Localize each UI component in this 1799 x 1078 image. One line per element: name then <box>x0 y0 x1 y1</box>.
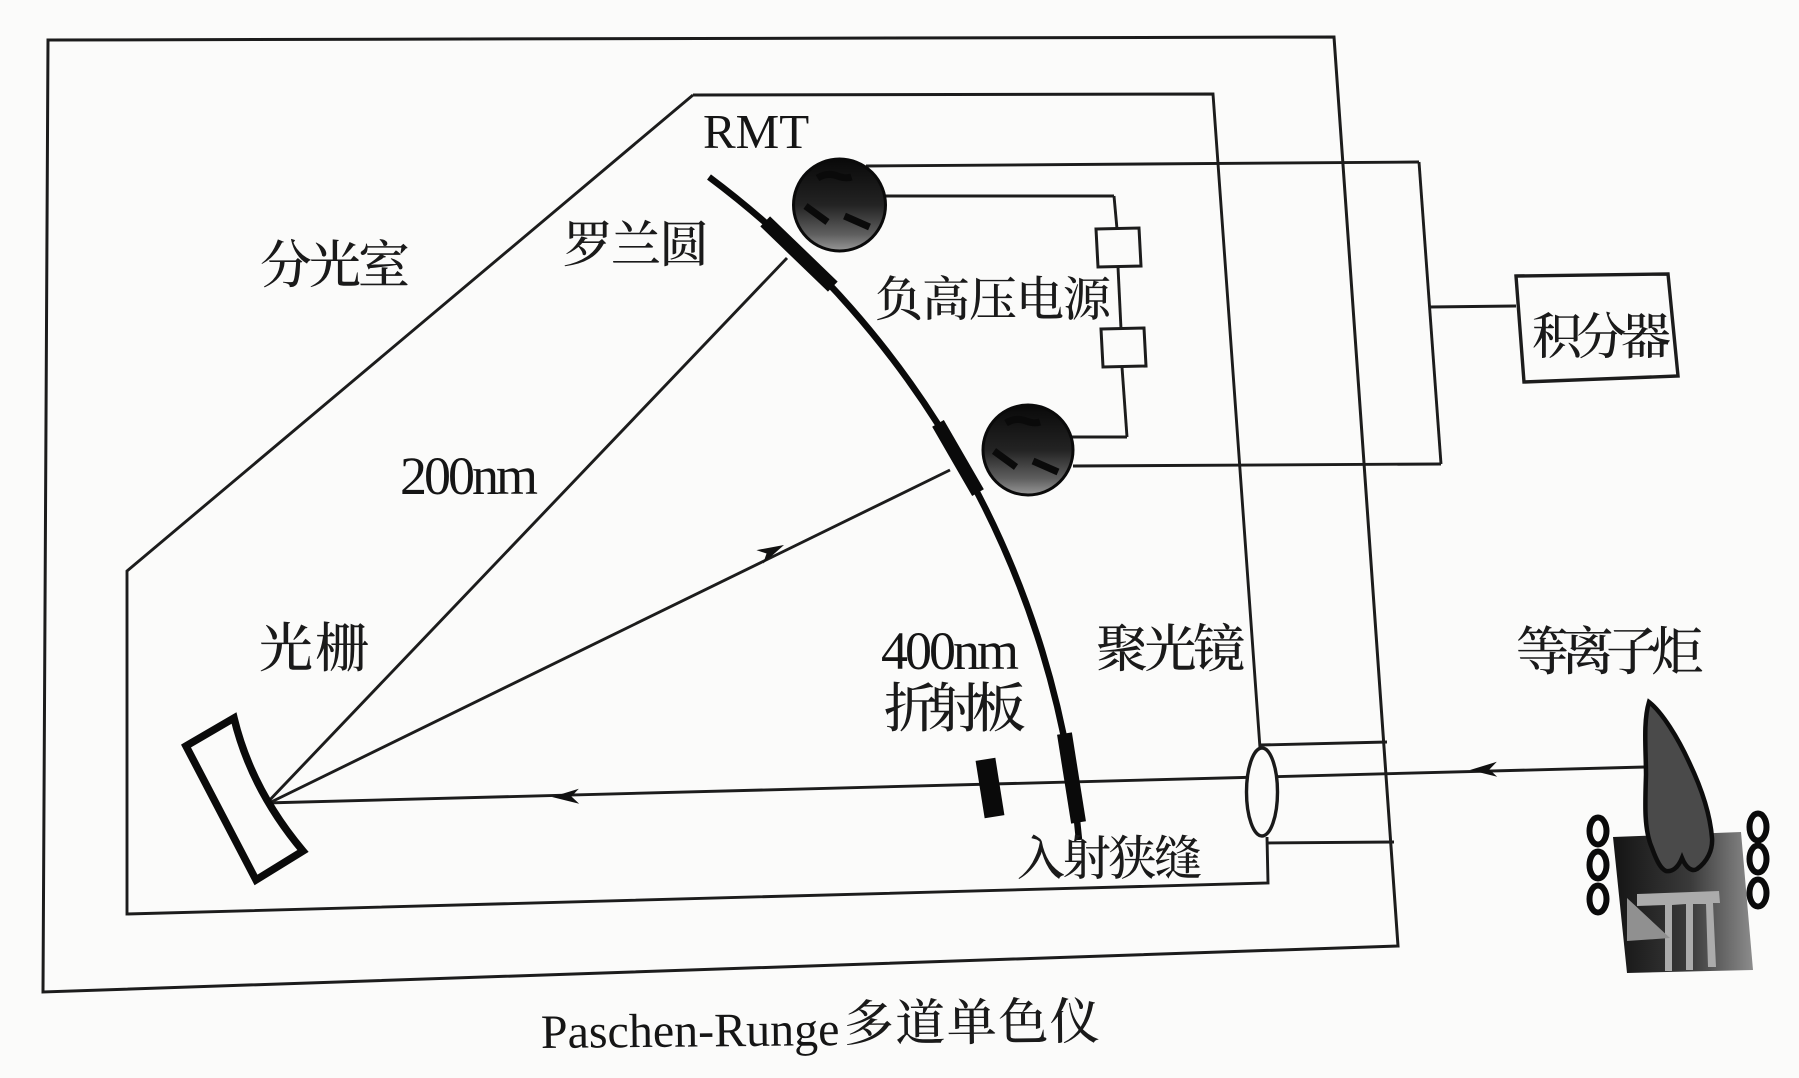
svg-text:400nm: 400nm <box>881 621 1019 681</box>
svg-text:200nm: 200nm <box>400 446 538 506</box>
svg-text:RMT: RMT <box>703 104 809 159</box>
svg-text:Paschen-Runge: Paschen-Runge <box>541 1003 840 1059</box>
